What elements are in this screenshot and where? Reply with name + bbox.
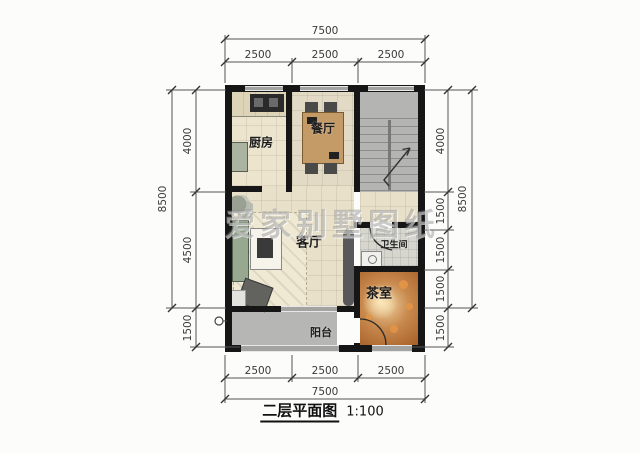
dim-top-seg: 2500 xyxy=(378,49,405,61)
drawing-title: 二层平面图1:100 xyxy=(260,400,383,421)
dim-left-seg: 1500 xyxy=(182,315,194,342)
wall-kitchen-dining xyxy=(286,92,292,192)
side-table xyxy=(230,290,246,307)
balcony-label: 阳台 xyxy=(310,324,332,340)
dim-top-seg: 2500 xyxy=(312,49,339,61)
dim-bottom-seg: 2500 xyxy=(312,365,339,377)
balcony-post-right xyxy=(339,345,358,352)
balcony-railing xyxy=(241,345,339,352)
wall-bathroom-bottom xyxy=(354,266,418,272)
dim-left-overall: 8500 xyxy=(157,186,169,213)
stair-window xyxy=(368,86,414,91)
dim-left-seg: 4000 xyxy=(182,128,194,155)
dim-top-overall: 7500 xyxy=(312,25,339,37)
dining-chair xyxy=(324,163,337,174)
floor-plan-canvas: 厨房 餐厅 客厅 卫生间 茶室 阳台 爱家别墅图纸 7500 2500 2500… xyxy=(0,0,640,453)
dim-right-overall: 8500 xyxy=(457,186,469,213)
wall-tearoom-bottom-left xyxy=(358,345,372,352)
dim-bottom-seg: 2500 xyxy=(378,365,405,377)
wall-living-balcony-right xyxy=(337,306,354,312)
title-text: 二层平面图 xyxy=(260,402,339,423)
stair-rail xyxy=(388,120,391,190)
living-balcony-window xyxy=(281,306,337,312)
tearoom-dot-decor xyxy=(366,314,372,320)
dim-bottom-overall: 7500 xyxy=(312,386,339,398)
dim-right-seg: 1500 xyxy=(435,315,447,342)
balcony-post-left xyxy=(225,345,241,352)
rainpipe-icon xyxy=(215,317,223,325)
wall-tearoom-bottom-right xyxy=(412,345,425,352)
tearoom-window xyxy=(372,345,412,352)
kitchen-window xyxy=(245,86,283,91)
watermark-text: 爱家别墅图纸 xyxy=(224,200,440,245)
wall-kitchen-bottom xyxy=(225,186,262,192)
dining-chair xyxy=(305,163,318,174)
tearoom-label: 茶室 xyxy=(366,283,392,302)
kitchen-label: 厨房 xyxy=(249,134,273,151)
tearoom-dot-decor xyxy=(406,303,413,310)
dining-window xyxy=(300,86,348,91)
wall-living-balcony-left xyxy=(231,306,281,312)
dim-left-seg: 4500 xyxy=(182,237,194,264)
title-scale: 1:100 xyxy=(346,405,383,420)
wall-dining-stairs xyxy=(354,92,360,192)
dining-label: 餐厅 xyxy=(311,120,335,137)
stove-icon xyxy=(250,94,284,112)
fridge-icon xyxy=(231,142,248,172)
tearoom-dot-decor xyxy=(399,280,408,289)
dim-bottom-seg: 2500 xyxy=(245,365,272,377)
dim-top-seg: 2500 xyxy=(245,49,272,61)
dim-right-seg: 1500 xyxy=(435,276,447,303)
tearoom-dot-decor xyxy=(390,325,398,333)
wall-tearoom-left xyxy=(354,272,360,318)
dim-right-seg: 4000 xyxy=(435,128,447,155)
sink-icon xyxy=(361,251,382,267)
